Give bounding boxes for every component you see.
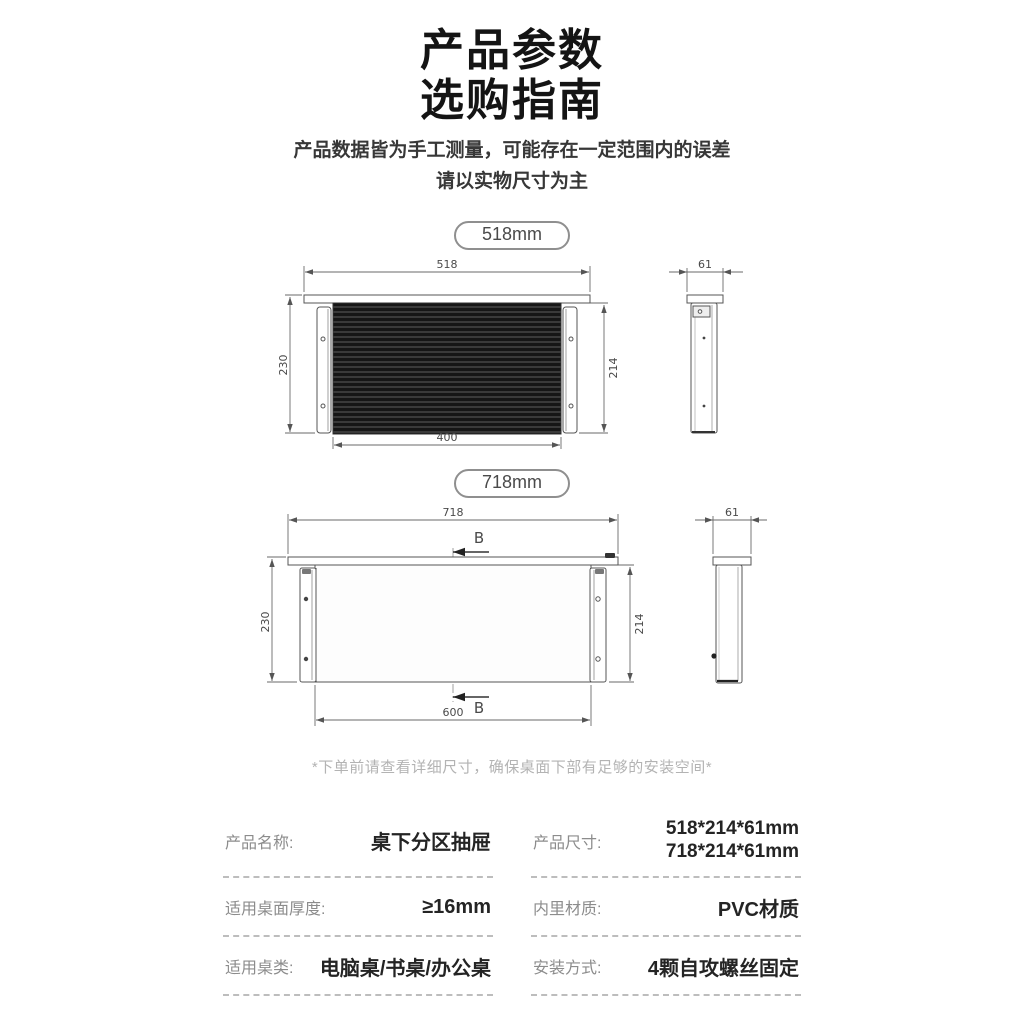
spec-value: 桌下分区抽屉: [371, 826, 491, 855]
size-line-2: 718*214*61mm: [666, 841, 799, 863]
mount-bracket-right: [563, 307, 577, 433]
spec-label: 适用桌类:: [225, 954, 293, 978]
bracket-hinge: [595, 569, 604, 574]
spec-label: 安装方式:: [533, 954, 601, 978]
screw-dot: [702, 337, 705, 340]
dim-bottom-width: 400: [436, 431, 457, 444]
screw-hole: [698, 310, 702, 314]
dim-bottom-width: 600: [443, 706, 464, 719]
drawer-718-side: [711, 557, 751, 683]
drawing-518-front-view: 518 400 230 214: [274, 256, 619, 451]
screw-hole: [596, 657, 600, 661]
drawing-518-side-view: 61: [661, 256, 751, 451]
spec-table: 产品名称: 桌下分区抽屉 产品尺寸: 518*214*61mm 718*214*…: [223, 803, 801, 996]
section-label-top: B: [474, 529, 484, 547]
size-badge-518: 518mm: [454, 221, 570, 250]
side-knob: [711, 653, 716, 658]
dim-side-depth: 61: [698, 258, 712, 271]
top-flange-edge: [713, 557, 751, 565]
top-flange: [304, 295, 590, 303]
top-flange-edge: [687, 295, 723, 303]
spec-row-product-name: 产品名称: 桌下分区抽屉: [223, 803, 493, 878]
dim-side-depth: 61: [725, 506, 739, 519]
mount-bracket-left: [300, 568, 316, 682]
size-line-1: 518*214*61mm: [666, 818, 799, 840]
screw-hole: [596, 597, 600, 601]
dim-left-height: 230: [259, 612, 272, 633]
dim-right-height: 214: [633, 614, 646, 635]
screw-dot: [702, 405, 705, 408]
bracket-hinge: [302, 569, 311, 574]
spec-value: ≥16mm: [422, 896, 491, 919]
section-label-bottom: B: [474, 699, 484, 717]
drawer-718-front: [288, 553, 618, 682]
section-arrow-top: [453, 548, 465, 557]
screw-hole: [321, 404, 325, 408]
spec-label: 产品尺寸:: [533, 829, 601, 853]
flange-end-cap: [605, 553, 615, 558]
drawing-718-front-view: B B 718 600: [256, 504, 646, 734]
product-spec-page: 产品参数 选购指南 产品数据皆为手工测量，可能存在一定范围内的误差 请以实物尺寸…: [0, 0, 1024, 1024]
disclaimer-line-1: 产品数据皆为手工测量，可能存在一定范围内的误差: [0, 136, 1024, 166]
badge-row-718: 718mm: [0, 469, 1024, 498]
spec-label: 内里材质:: [533, 895, 601, 919]
screw-hole: [321, 337, 325, 341]
spec-value: 电脑桌/书桌/办公桌: [320, 952, 491, 981]
drawer-518-side: [687, 295, 723, 433]
drawer-front-panel: [315, 565, 591, 682]
spec-label: 产品名称:: [225, 829, 293, 853]
mount-bracket-left: [317, 307, 331, 433]
screw-dot: [304, 657, 308, 661]
spec-value: 518*214*61mm 718*214*61mm: [666, 818, 799, 863]
disclaimer-line-2: 请以实物尺寸为主: [0, 167, 1024, 197]
drawer-518-front: [304, 295, 590, 434]
spec-row-desk-thickness: 适用桌面厚度: ≥16mm: [223, 878, 493, 937]
footnote: *下单前请查看详细尺寸，确保桌面下部有足够的安装空间*: [0, 756, 1024, 777]
mount-bracket-right: [590, 568, 606, 682]
drawing-718-side-view: 61: [688, 504, 768, 734]
size-badge-718: 718mm: [454, 469, 570, 498]
spec-row-inner-material: 内里材质: PVC材质: [531, 878, 801, 937]
drawing-group-718: B B 718 600: [0, 504, 1024, 734]
spec-row-desk-type: 适用桌类: 电脑桌/书桌/办公桌: [223, 937, 493, 996]
dim-left-height: 230: [277, 355, 290, 376]
dim-top-width: 718: [443, 506, 464, 519]
screw-dot: [304, 597, 308, 601]
drawing-group-518: 518 400 230 214: [0, 256, 1024, 451]
top-flange: [288, 557, 618, 565]
title-line-1: 产品参数: [0, 26, 1024, 76]
spec-row-product-size: 产品尺寸: 518*214*61mm 718*214*61mm: [531, 803, 801, 878]
dim-right-height: 214: [607, 358, 619, 379]
screw-hole: [569, 404, 573, 408]
drawer-front-panel: [333, 303, 561, 434]
title-line-2: 选购指南: [0, 76, 1024, 126]
screw-hole: [569, 337, 573, 341]
disclaimer: 产品数据皆为手工测量，可能存在一定范围内的误差 请以实物尺寸为主: [0, 136, 1024, 197]
page-title: 产品参数 选购指南: [0, 26, 1024, 126]
section-arrow-bottom: [453, 693, 465, 702]
badge-row-518: 518mm: [0, 221, 1024, 250]
spec-row-installation: 安装方式: 4颗自攻螺丝固定: [531, 937, 801, 996]
dim-top-width: 518: [436, 258, 457, 271]
spec-value: 4颗自攻螺丝固定: [648, 952, 799, 981]
spec-value: PVC材质: [718, 893, 799, 922]
spec-label: 适用桌面厚度:: [225, 895, 325, 919]
